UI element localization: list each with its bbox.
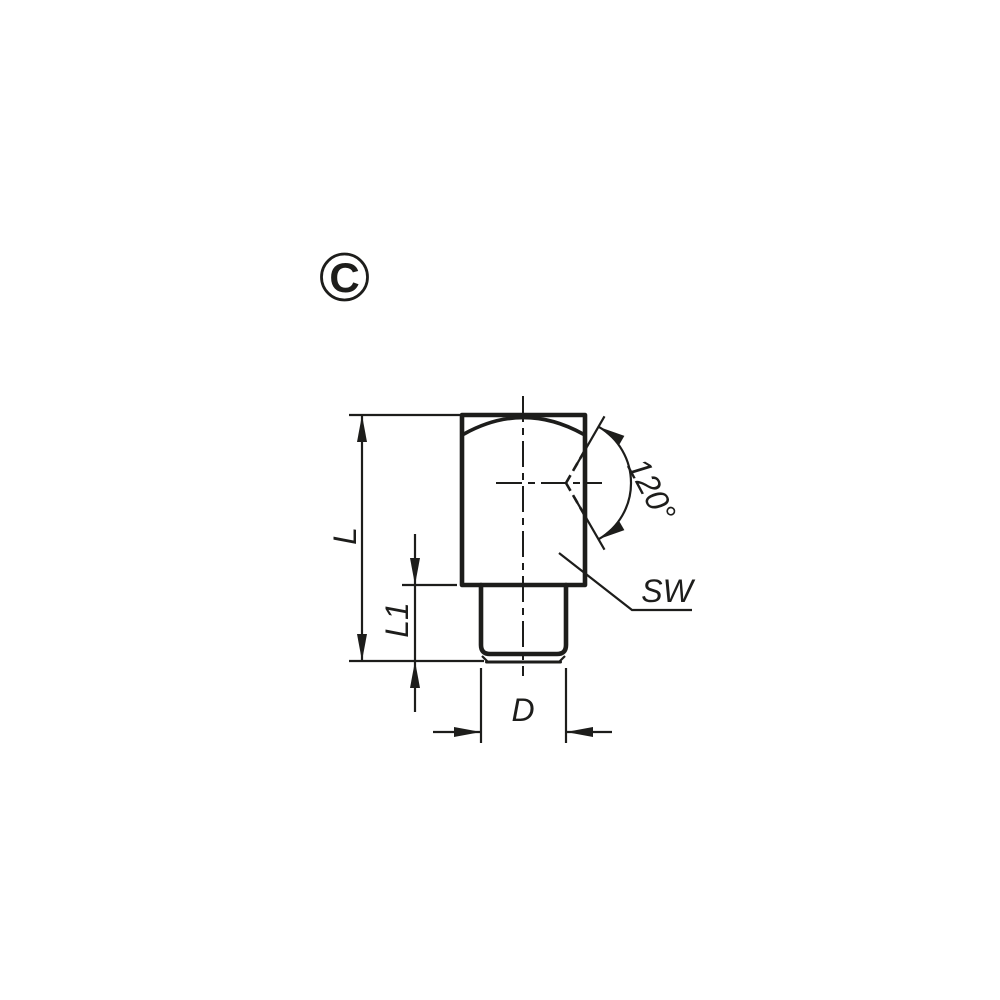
L1-arrowhead-top [410, 558, 420, 585]
dimension-D: D [433, 668, 612, 743]
dimension-L1: L1 [379, 534, 457, 712]
L-arrowhead-bottom [357, 634, 367, 661]
L1-label: L1 [379, 602, 415, 638]
D-arrowhead-right [566, 727, 593, 737]
D-arrowhead-left [454, 727, 481, 737]
L1-arrowhead-bottom [410, 661, 420, 688]
L-arrowhead-top [357, 415, 367, 442]
angle-extension-upper [575, 416, 605, 468]
view-label: C [322, 254, 368, 301]
angle-dimension-arc [599, 427, 632, 540]
view-label-text: C [329, 254, 359, 301]
D-label: D [511, 692, 534, 728]
drawing-canvas: C 120° [0, 0, 1000, 1000]
leader-SW: SW [559, 553, 696, 610]
angle-extension-lower [575, 498, 605, 550]
SW-label: SW [641, 573, 695, 609]
technical-drawing: C 120° [0, 0, 1000, 1000]
L-label: L [327, 527, 363, 545]
